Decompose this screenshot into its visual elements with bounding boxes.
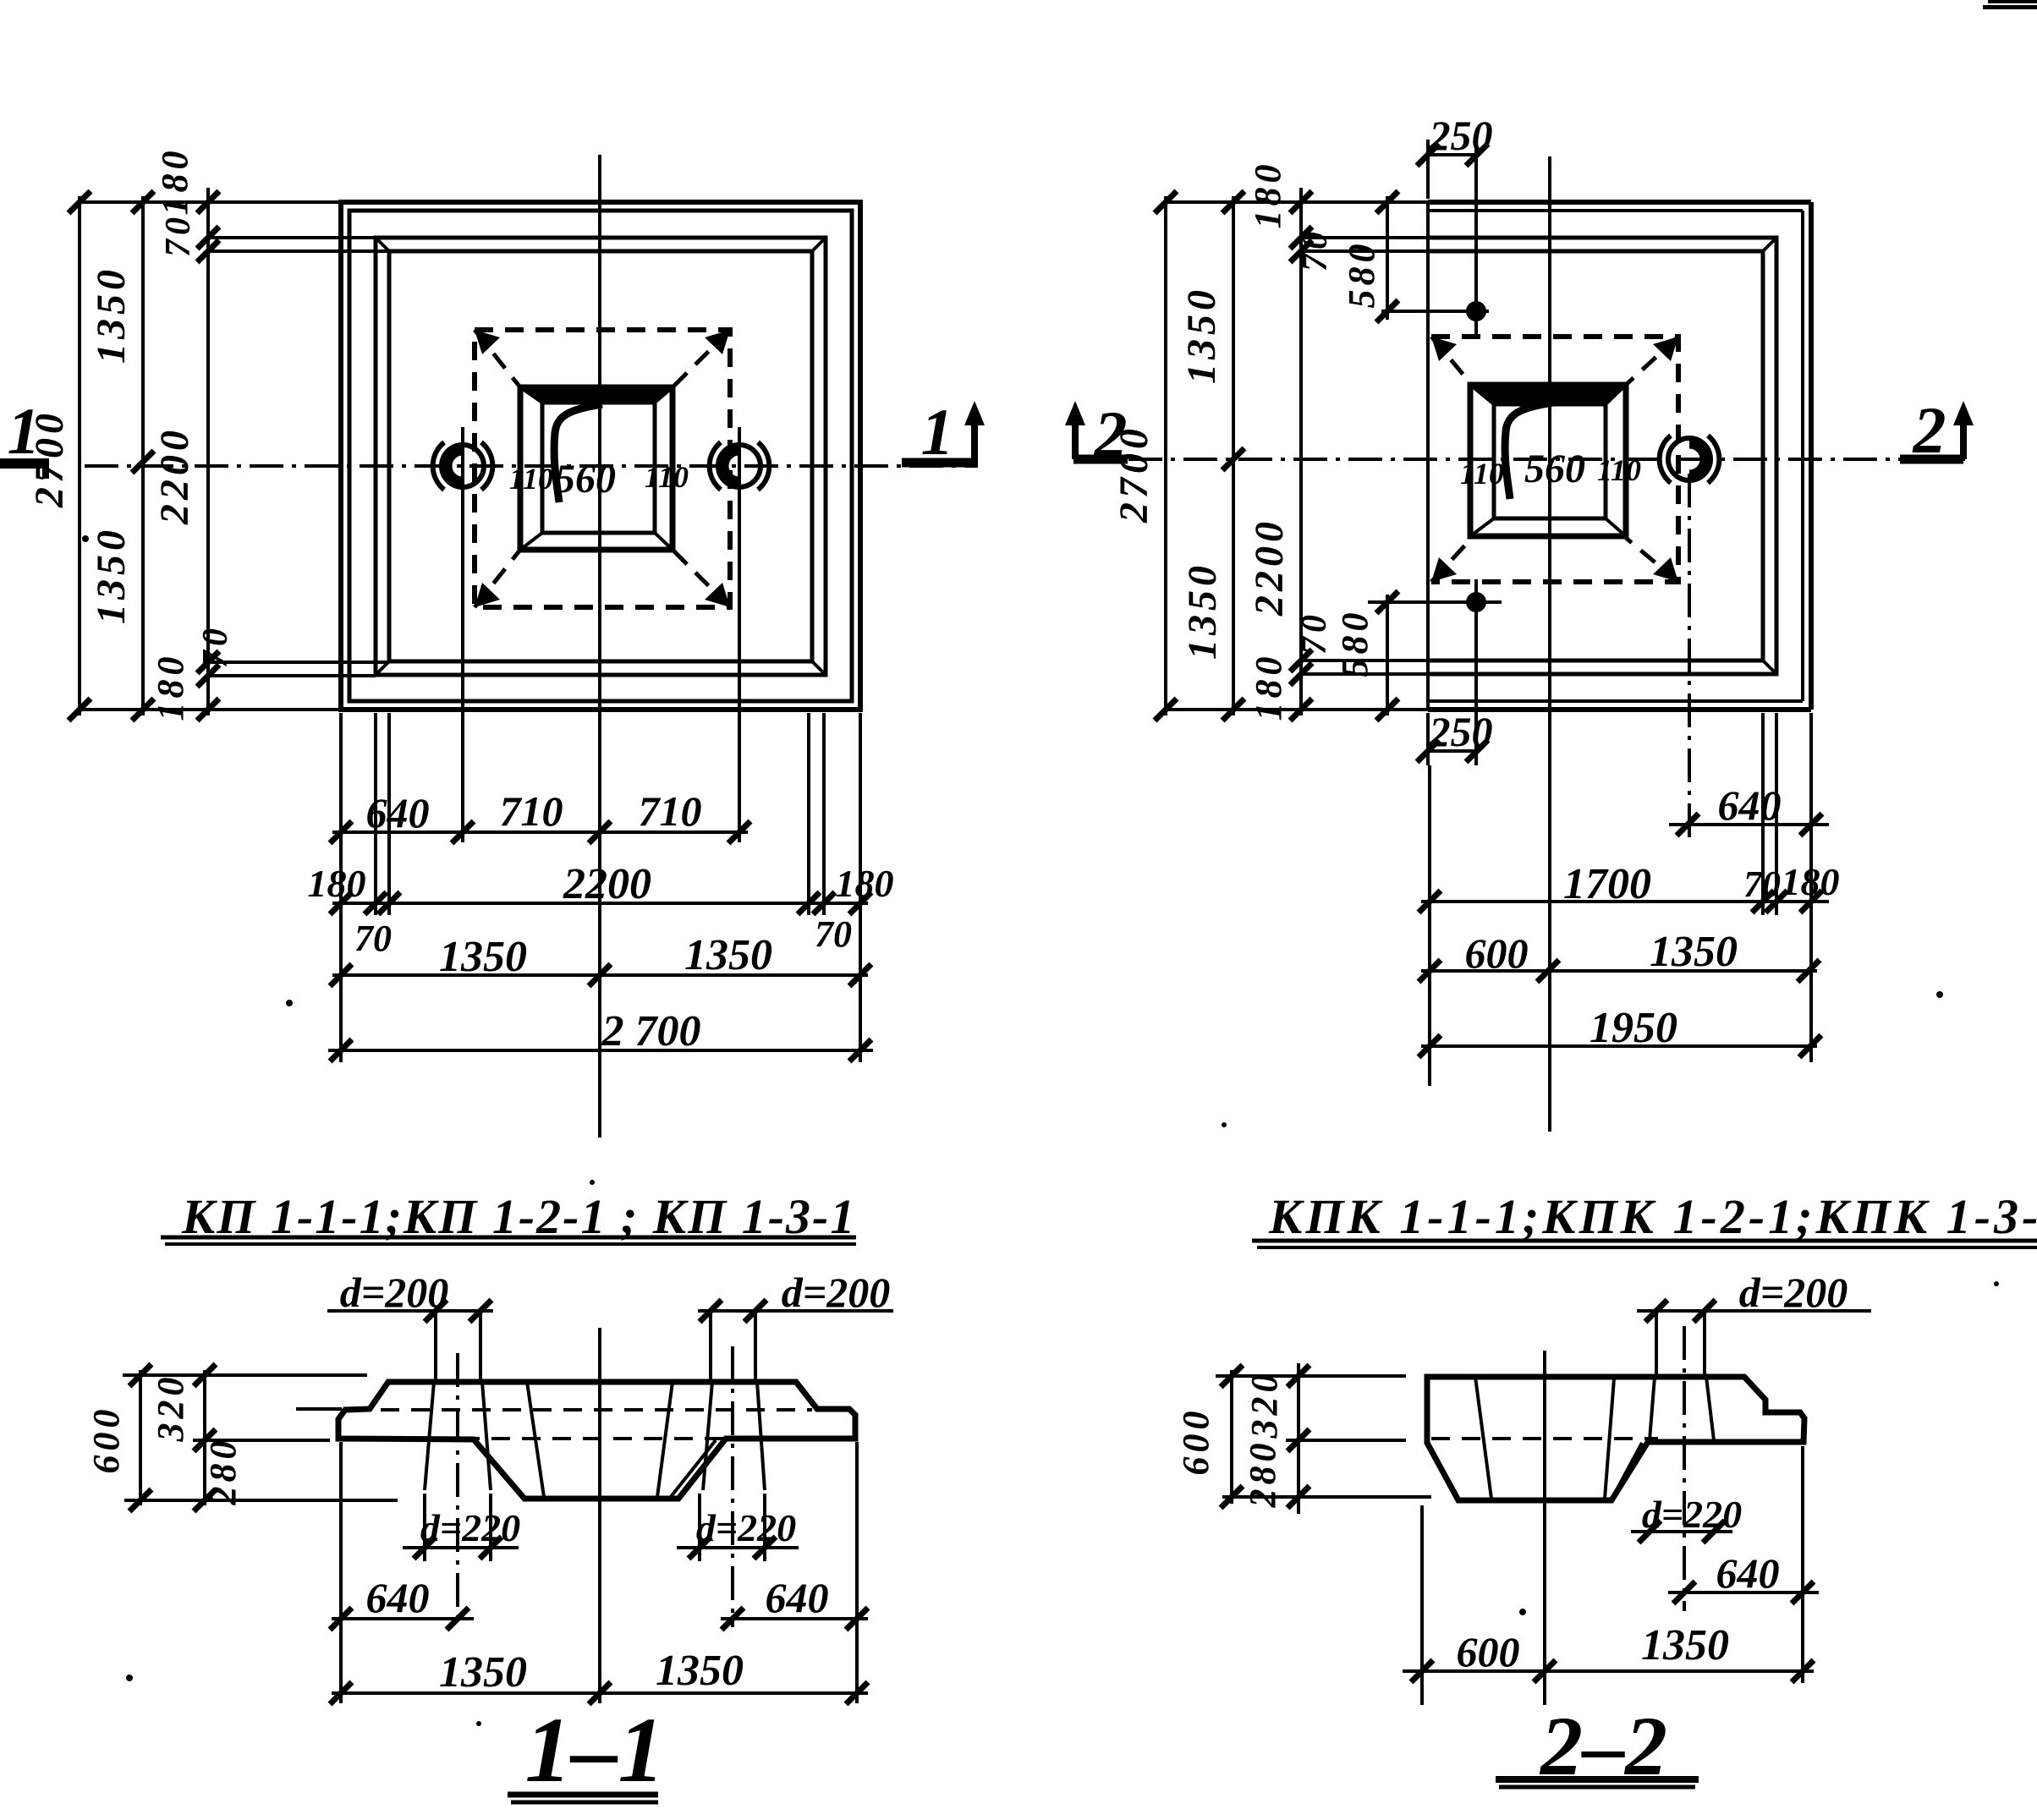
svg-text:250: 250 [1429, 708, 1493, 755]
svg-text:КПК 1-1-1;КПК 1-2-1;КПК 1-3-: КПК 1-1-1;КПК 1-2-1;КПК 1-3- [1268, 1189, 2037, 1244]
svg-text:1350: 1350 [439, 1648, 527, 1697]
svg-text:110: 110 [1460, 457, 1504, 491]
svg-text:2200: 2200 [563, 860, 651, 908]
svg-text:640: 640 [366, 1574, 430, 1621]
svg-text:1350: 1350 [656, 1647, 744, 1695]
svg-text:70: 70 [1743, 863, 1781, 905]
svg-text:180: 180 [308, 862, 366, 905]
svg-text:180: 180 [154, 147, 195, 216]
svg-text:d=220: d=220 [696, 1506, 796, 1549]
svg-text:2200: 2200 [152, 426, 197, 525]
svg-text:560: 560 [1524, 447, 1585, 491]
svg-text:1350: 1350 [89, 266, 134, 364]
svg-text:d=200: d=200 [782, 1269, 891, 1316]
svg-text:1350: 1350 [1650, 928, 1738, 976]
svg-text:320: 320 [150, 1373, 191, 1443]
svg-text:640: 640 [1716, 1549, 1780, 1597]
svg-text:1: 1 [921, 395, 954, 469]
svg-text:1350: 1350 [1179, 286, 1224, 384]
svg-text:1350: 1350 [1641, 1621, 1729, 1669]
svg-text:600: 600 [1175, 1407, 1216, 1476]
svg-text:180: 180 [836, 862, 894, 905]
svg-text:1350: 1350 [1180, 562, 1225, 660]
svg-text:70: 70 [815, 913, 852, 955]
svg-text:1350: 1350 [89, 526, 134, 624]
svg-text:70: 70 [159, 213, 198, 257]
svg-text:560: 560 [555, 457, 616, 502]
svg-text:180: 180 [1782, 860, 1840, 903]
svg-text:2: 2 [1913, 393, 1946, 467]
svg-text:640: 640 [366, 789, 430, 836]
svg-text:70: 70 [354, 918, 392, 959]
svg-text:640: 640 [766, 1574, 829, 1621]
svg-text:1–1: 1–1 [525, 1698, 665, 1801]
svg-text:640: 640 [1718, 781, 1782, 829]
svg-text:600: 600 [85, 1406, 127, 1474]
svg-text:1350: 1350 [684, 931, 772, 979]
svg-text:1700: 1700 [1563, 860, 1651, 908]
svg-text:710: 710 [639, 787, 702, 835]
svg-text:600: 600 [1457, 1628, 1520, 1675]
svg-text:600: 600 [1465, 929, 1529, 977]
svg-text:580: 580 [1334, 609, 1375, 677]
svg-text:280: 280 [202, 1437, 244, 1506]
svg-text:70: 70 [1295, 611, 1334, 655]
svg-text:180: 180 [1247, 161, 1288, 229]
svg-text:2 700: 2 700 [601, 1007, 701, 1055]
svg-text:2700: 2700 [1112, 425, 1156, 524]
svg-text:d=200: d=200 [1739, 1269, 1848, 1316]
svg-text:2200: 2200 [1247, 518, 1292, 617]
svg-text:1950: 1950 [1590, 1004, 1677, 1052]
svg-text:d=220: d=220 [1642, 1493, 1742, 1536]
svg-text:2700: 2700 [27, 409, 72, 508]
svg-text:d=200: d=200 [340, 1269, 449, 1316]
svg-text:1350: 1350 [439, 933, 527, 981]
svg-text:250: 250 [1429, 112, 1493, 159]
svg-text:d=220: d=220 [420, 1506, 520, 1549]
svg-text:320: 320 [1244, 1370, 1285, 1439]
svg-text:710: 710 [500, 787, 563, 835]
